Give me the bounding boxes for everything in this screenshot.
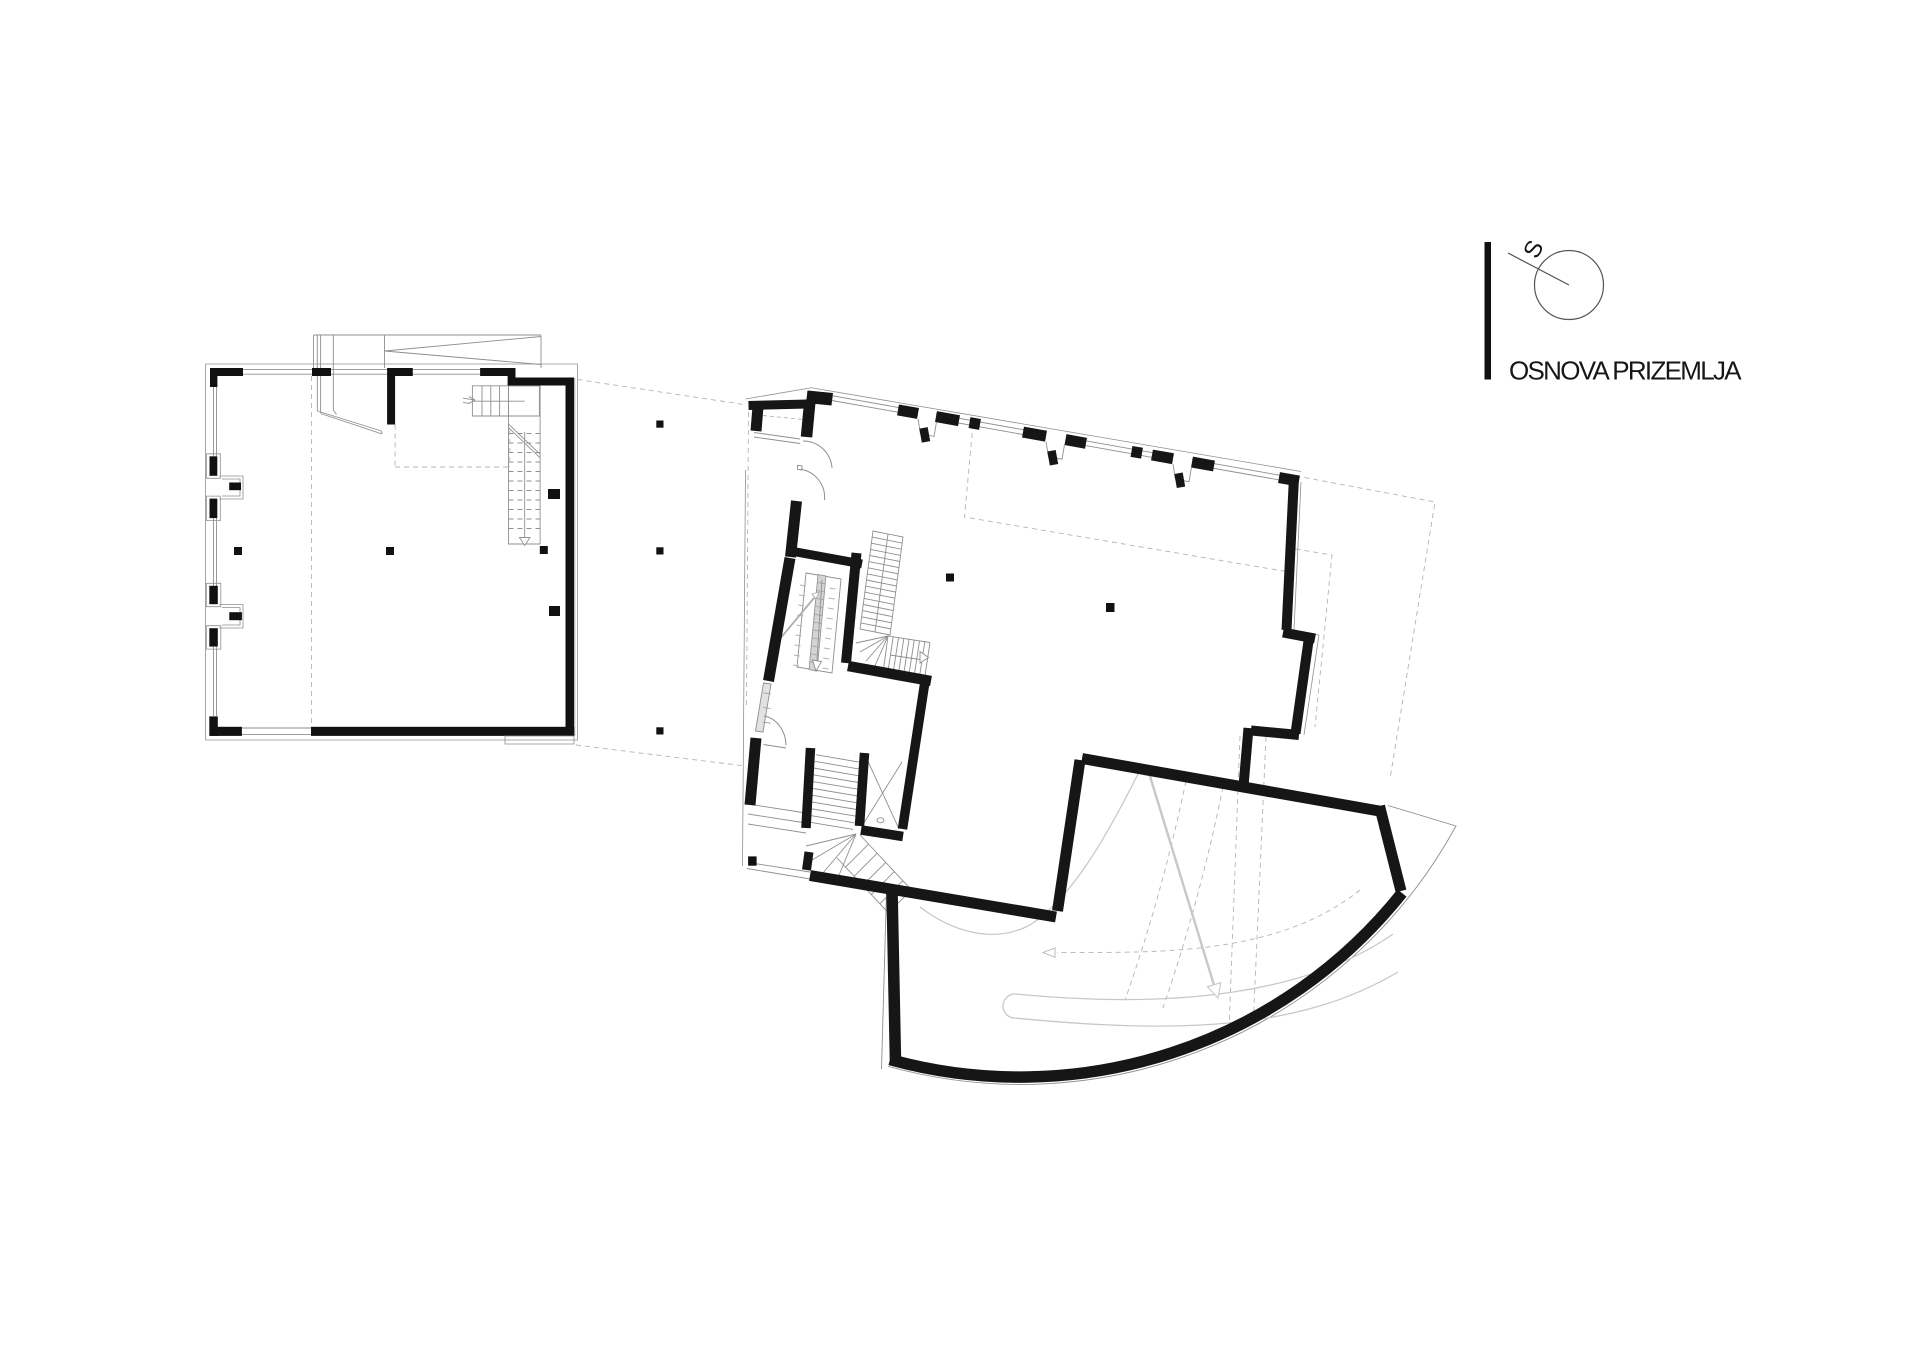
svg-text:OSNOVA PRIZEMLJA: OSNOVA PRIZEMLJA — [1509, 356, 1742, 386]
